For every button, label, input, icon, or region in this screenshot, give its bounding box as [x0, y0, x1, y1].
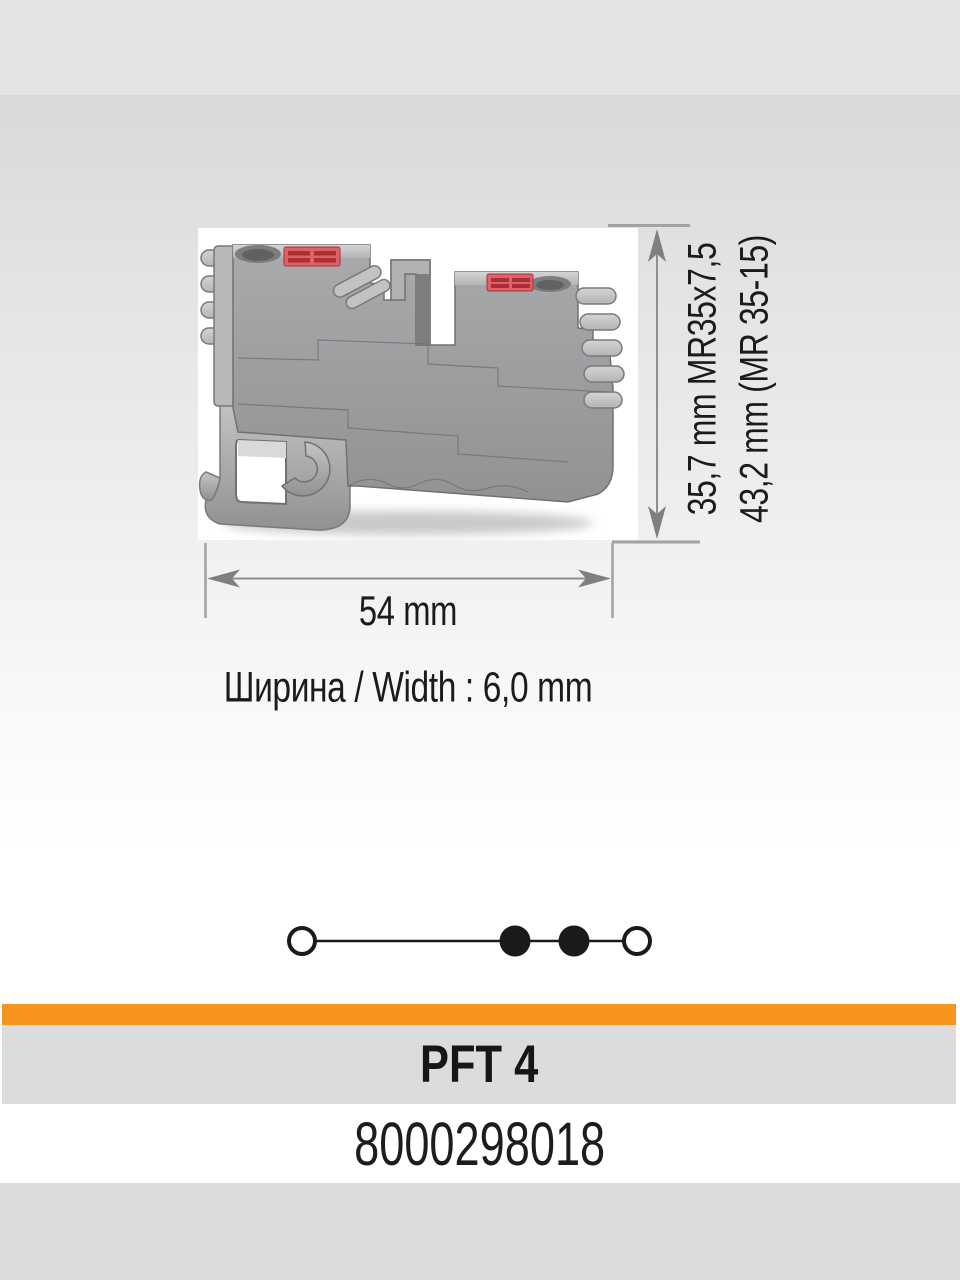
wire-hole-left-inner — [242, 249, 274, 261]
product-code-band: 8000298018 — [0, 1104, 960, 1183]
push-button-right — [487, 274, 533, 291]
top-gray-band — [0, 0, 960, 95]
height-dimension-label-primary: 35,7 mm MR35x7,5 — [681, 243, 726, 516]
pitch-width-note: Ширина / Width : 6,0 mm — [224, 664, 593, 713]
product-order-code: 8000298018 — [354, 1109, 605, 1179]
bottom-gray-band — [0, 1183, 960, 1280]
height-dimension-label-secondary: 43,2 mm (MR 35-15) — [733, 235, 778, 523]
terminal-block-image — [198, 228, 638, 540]
wire-hole-right-inner — [536, 280, 564, 290]
center-recess — [416, 274, 430, 344]
width-dimension-label: 54 mm — [359, 587, 457, 635]
din-rail-channel-shade — [238, 440, 286, 458]
product-name: PFT 4 — [420, 1034, 538, 1095]
datasheet-page: 35,7 mm MR35x7,5 43,2 mm (MR 35-15) 54 m… — [0, 0, 960, 1280]
accent-orange-bar — [2, 1004, 956, 1025]
push-button-left — [284, 247, 340, 266]
product-name-band: PFT 4 — [2, 1025, 956, 1104]
product-photo-box — [198, 228, 638, 540]
